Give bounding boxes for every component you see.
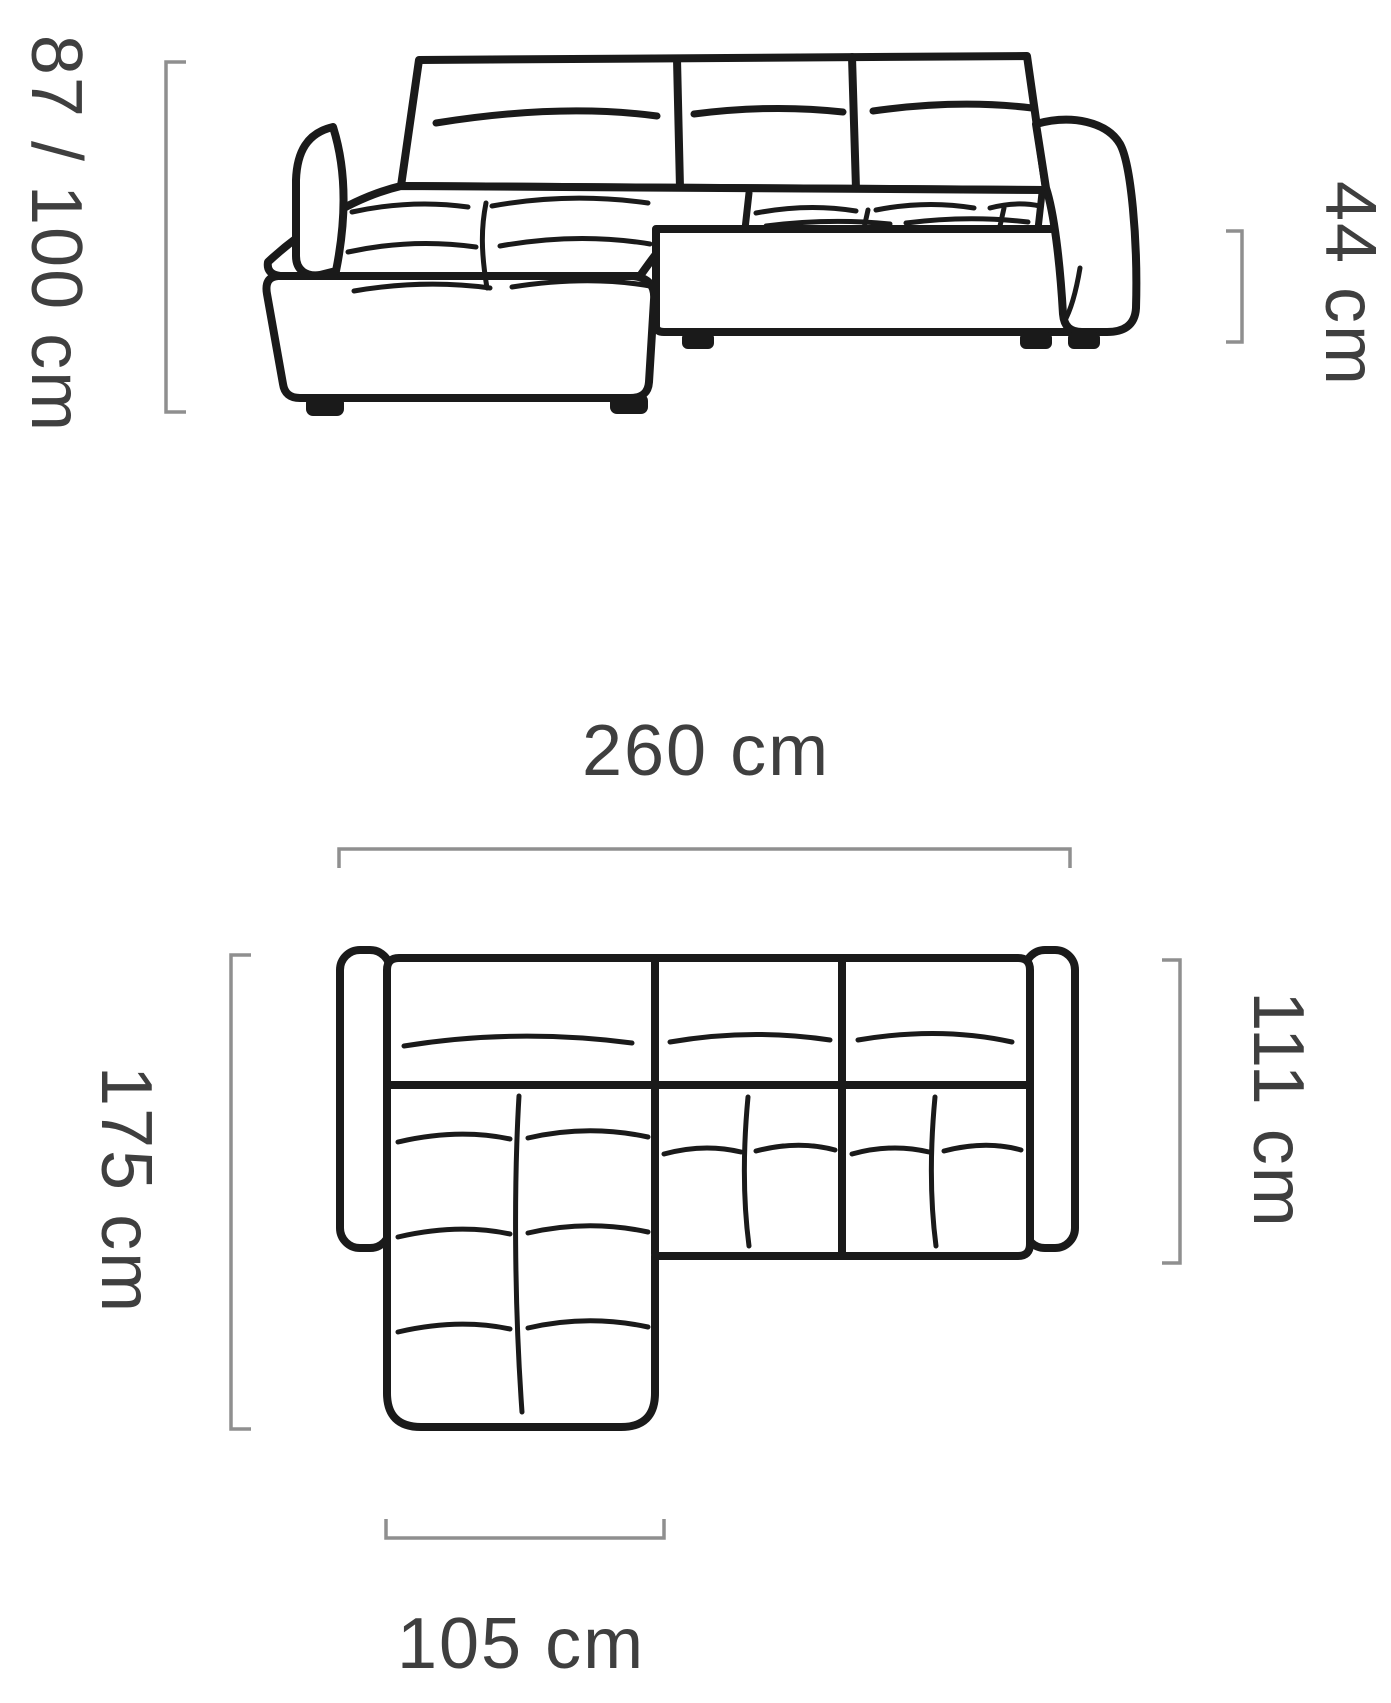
bracket-body-depth bbox=[1162, 960, 1180, 1263]
bracket-overall-height bbox=[166, 62, 186, 412]
diagram-canvas bbox=[0, 0, 1391, 1703]
front-backrest bbox=[401, 56, 1046, 190]
bracket-seat-height bbox=[1226, 231, 1242, 342]
bracket-chaise-width bbox=[386, 1519, 664, 1538]
seat-height-label: 44 cm bbox=[1309, 181, 1391, 387]
overall-depth-label: 175 cm bbox=[85, 1066, 167, 1314]
chaise-width-label: 105 cm bbox=[397, 1603, 645, 1685]
front-main-base bbox=[656, 229, 1100, 332]
sofa-front-view bbox=[266, 56, 1136, 416]
sofa-dimension-diagram: 87 / 100 cm 44 cm 260 cm 175 cm 111 cm 1… bbox=[0, 0, 1391, 1703]
bracket-overall-width bbox=[339, 849, 1070, 868]
front-left-armrest bbox=[296, 127, 344, 275]
front-chaise-base bbox=[266, 276, 654, 398]
body-depth-label: 111 cm bbox=[1237, 991, 1319, 1228]
overall-height-label: 87 / 100 cm bbox=[15, 35, 97, 433]
overall-width-label: 260 cm bbox=[582, 710, 830, 792]
bracket-overall-depth bbox=[231, 955, 251, 1429]
sofa-top-view bbox=[340, 950, 1075, 1427]
top-left-armrest bbox=[340, 950, 390, 1248]
